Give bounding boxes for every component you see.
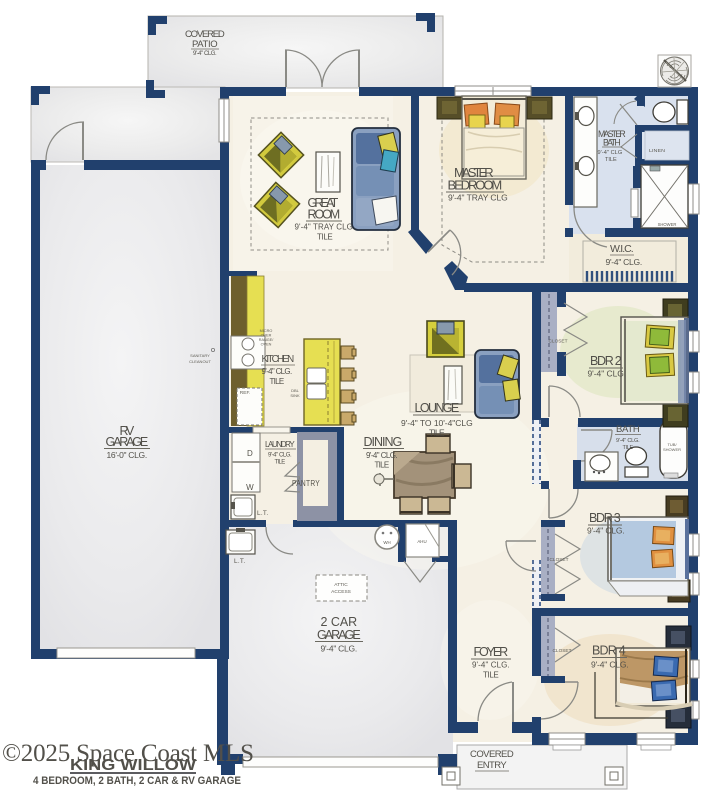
svg-text:SINK: SINK (290, 393, 300, 398)
svg-text:GARAGE: GARAGE (106, 435, 149, 449)
svg-text:CLOSET: CLOSET (550, 557, 569, 563)
svg-text:RANGE/: RANGE/ (259, 338, 275, 342)
svg-text:9'-4" TO 10'-4"CLG: 9'-4" TO 10'-4"CLG (401, 418, 473, 428)
svg-text:COVERED: COVERED (470, 749, 514, 760)
svg-text:ACCESS: ACCESS (331, 589, 351, 595)
svg-text:REF.: REF. (240, 390, 250, 396)
svg-text:L.T.: L.T. (257, 510, 269, 517)
svg-text:9'-4" CLG.: 9'-4" CLG. (268, 453, 292, 459)
svg-text:9'-4" CLG.: 9'-4" CLG. (472, 661, 510, 670)
svg-text:W: W (246, 483, 254, 492)
svg-text:SANITARY: SANITARY (190, 353, 210, 358)
svg-text:TILE: TILE (429, 428, 445, 438)
svg-text:PANTRY: PANTRY (292, 479, 320, 488)
svg-text:BATH: BATH (603, 138, 621, 148)
svg-text:LAUNDRY: LAUNDRY (265, 440, 295, 449)
svg-text:2 CAR: 2 CAR (321, 615, 358, 629)
svg-text:D: D (247, 449, 253, 458)
svg-text:AHU: AHU (417, 539, 426, 544)
svg-text:WH: WH (383, 540, 390, 545)
svg-text:TILE: TILE (270, 377, 285, 386)
svg-text:9'-4" CLG.: 9'-4" CLG. (366, 451, 398, 460)
svg-text:9'-4" CLG.: 9'-4" CLG. (321, 644, 358, 654)
svg-text:BDR 3: BDR 3 (589, 511, 621, 525)
svg-text:FOYER: FOYER (474, 645, 509, 659)
svg-text:LOUNGE: LOUNGE (415, 401, 460, 415)
svg-text:16'-0" CLG.: 16'-0" CLG. (107, 450, 148, 460)
svg-text:KING WILLOW: KING WILLOW (70, 757, 197, 774)
svg-text:ROOM: ROOM (308, 208, 341, 222)
svg-text:ATTIC: ATTIC (334, 582, 348, 588)
svg-text:ENTRY: ENTRY (477, 760, 507, 771)
svg-text:SHOWER: SHOWER (658, 222, 677, 227)
svg-text:SHOWER: SHOWER (663, 447, 681, 452)
svg-text:L.T.: L.T. (234, 558, 246, 565)
svg-text:9'-4" CLG: 9'-4" CLG (598, 150, 623, 156)
svg-text:9'-4" CLG.: 9'-4" CLG. (193, 51, 217, 57)
svg-text:TILE: TILE (275, 460, 286, 466)
svg-text:MICRO: MICRO (260, 329, 273, 333)
svg-text:KITCHEN: KITCHEN (262, 354, 295, 365)
svg-text:TILE: TILE (317, 233, 333, 242)
svg-text:9'-4" CLG.: 9'-4" CLG. (588, 369, 627, 379)
svg-text:OVEN: OVEN (261, 343, 272, 347)
svg-text:BDR 4: BDR 4 (592, 644, 626, 658)
svg-text:CLOSET: CLOSET (549, 339, 568, 345)
svg-text:TILE: TILE (375, 461, 390, 470)
svg-text:BDR 2: BDR 2 (590, 354, 622, 368)
svg-text:LINEN: LINEN (649, 148, 666, 154)
svg-text:TILE: TILE (623, 445, 634, 451)
svg-text:9'-4" CLG.: 9'-4" CLG. (587, 526, 625, 536)
svg-text:PATIO: PATIO (192, 39, 218, 50)
svg-text:BEDROOM: BEDROOM (448, 178, 503, 193)
svg-text:9'-4" CLG.: 9'-4" CLG. (616, 438, 640, 444)
svg-text:9'-4" TRAY CLG: 9'-4" TRAY CLG (448, 193, 508, 203)
svg-text:9'-4" TRAY CLG.: 9'-4" TRAY CLG. (295, 223, 356, 232)
svg-text:BATH: BATH (616, 424, 640, 435)
svg-text:CLEANOUT: CLEANOUT (189, 359, 211, 364)
svg-text:DINING: DINING (364, 435, 403, 449)
svg-text:CLOSET: CLOSET (553, 648, 572, 654)
svg-text:TILE: TILE (605, 157, 617, 163)
svg-text:GARAGE: GARAGE (317, 628, 361, 642)
svg-text:W.I.C.: W.I.C. (610, 243, 634, 255)
svg-text:9'-4" CLG.: 9'-4" CLG. (591, 660, 629, 670)
svg-text:9'-4" CLG.: 9'-4" CLG. (262, 367, 293, 376)
svg-text:OVER: OVER (261, 334, 272, 338)
svg-text:TILE: TILE (483, 671, 499, 680)
svg-text:4 BEDROOM, 2 BATH, 2 CAR & RV: 4 BEDROOM, 2 BATH, 2 CAR & RV GARAGE (33, 775, 241, 787)
svg-text:9'-4" CLG.: 9'-4" CLG. (606, 257, 643, 267)
